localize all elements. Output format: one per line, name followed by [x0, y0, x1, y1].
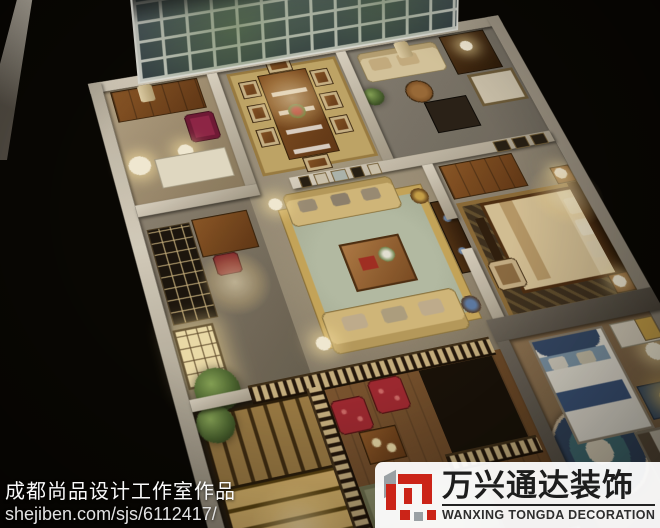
- logo-red-square-2: [427, 510, 436, 520]
- watermark-bottom-left: 成都尚品设计工作室作品 shejiben.com/sjs/6112417/: [5, 481, 236, 525]
- corner-wall-fragment: [0, 0, 70, 160]
- logo-text-block: 万兴通达装饰 WANXING TONGDA DECORATION: [442, 469, 655, 522]
- red-accent-box: [358, 255, 379, 270]
- watermark-studio-text: 成都尚品设计工作室作品: [5, 481, 236, 503]
- logo-english-name: WANXING TONGDA DECORATION: [442, 504, 655, 522]
- dining-centerpiece: [286, 103, 308, 119]
- logo-watermark: 万兴通达装饰 WANXING TONGDA DECORATION: [375, 462, 660, 528]
- logo-red-square: [400, 510, 410, 520]
- watermark-url-text: shejiben.com/sjs/6112417/: [5, 503, 236, 525]
- wanxing-logo-mark: [382, 468, 436, 522]
- screenshot-canvas: 成都尚品设计工作室作品 shejiben.com/sjs/6112417/ 万兴…: [0, 0, 660, 528]
- logo-red-bar-left: [386, 484, 396, 510]
- logo-chinese-name: 万兴通达装饰: [442, 469, 655, 503]
- sofa-pillow: [297, 198, 319, 213]
- logo-red-bar-inner: [404, 488, 412, 504]
- logo-red-bar-right: [422, 474, 432, 504]
- logo-gray-square: [414, 512, 423, 521]
- sofa-cushion: [395, 52, 420, 67]
- apartment-plan: [88, 15, 660, 528]
